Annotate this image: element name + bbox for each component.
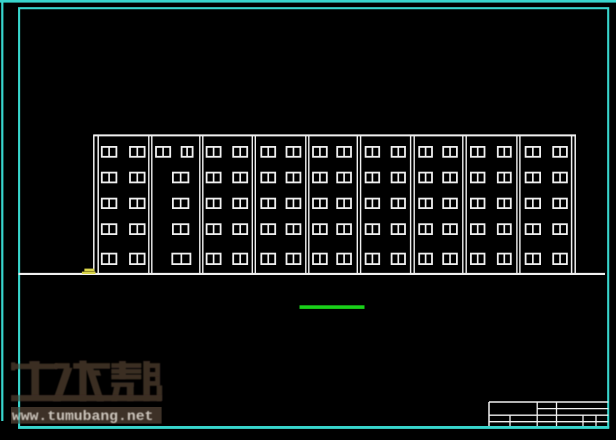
svg-text:www.tumubang.net: www.tumubang.net: [12, 409, 154, 425]
